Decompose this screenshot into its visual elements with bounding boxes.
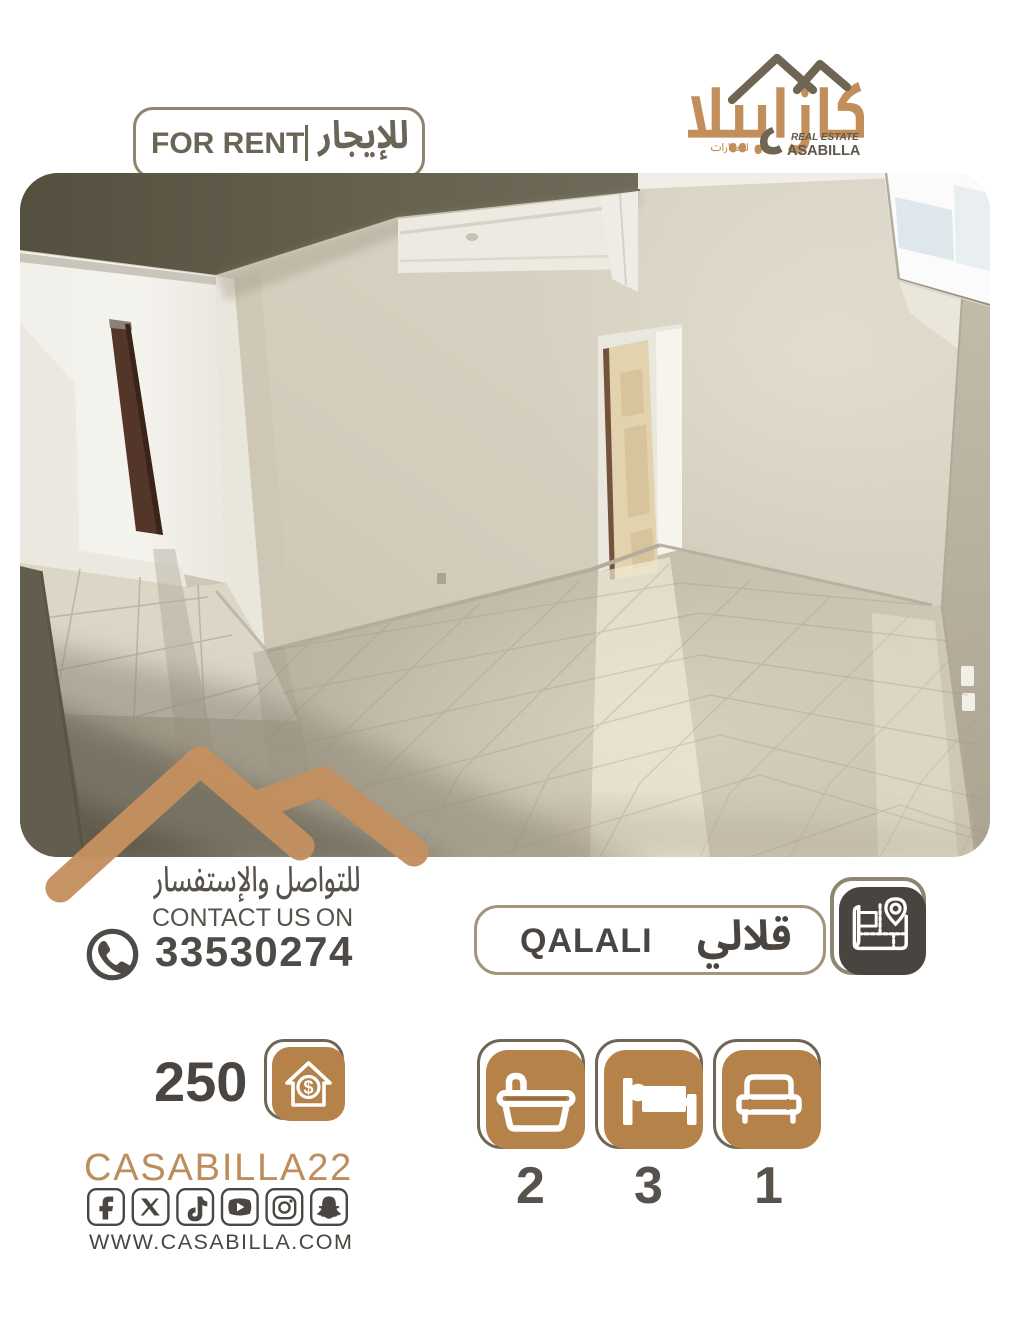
svg-text:ASABILLA: ASABILLA <box>787 143 861 159</box>
svg-text:REAL ESTATE: REAL ESTATE <box>791 132 859 143</box>
svg-text:$: $ <box>303 1078 313 1098</box>
